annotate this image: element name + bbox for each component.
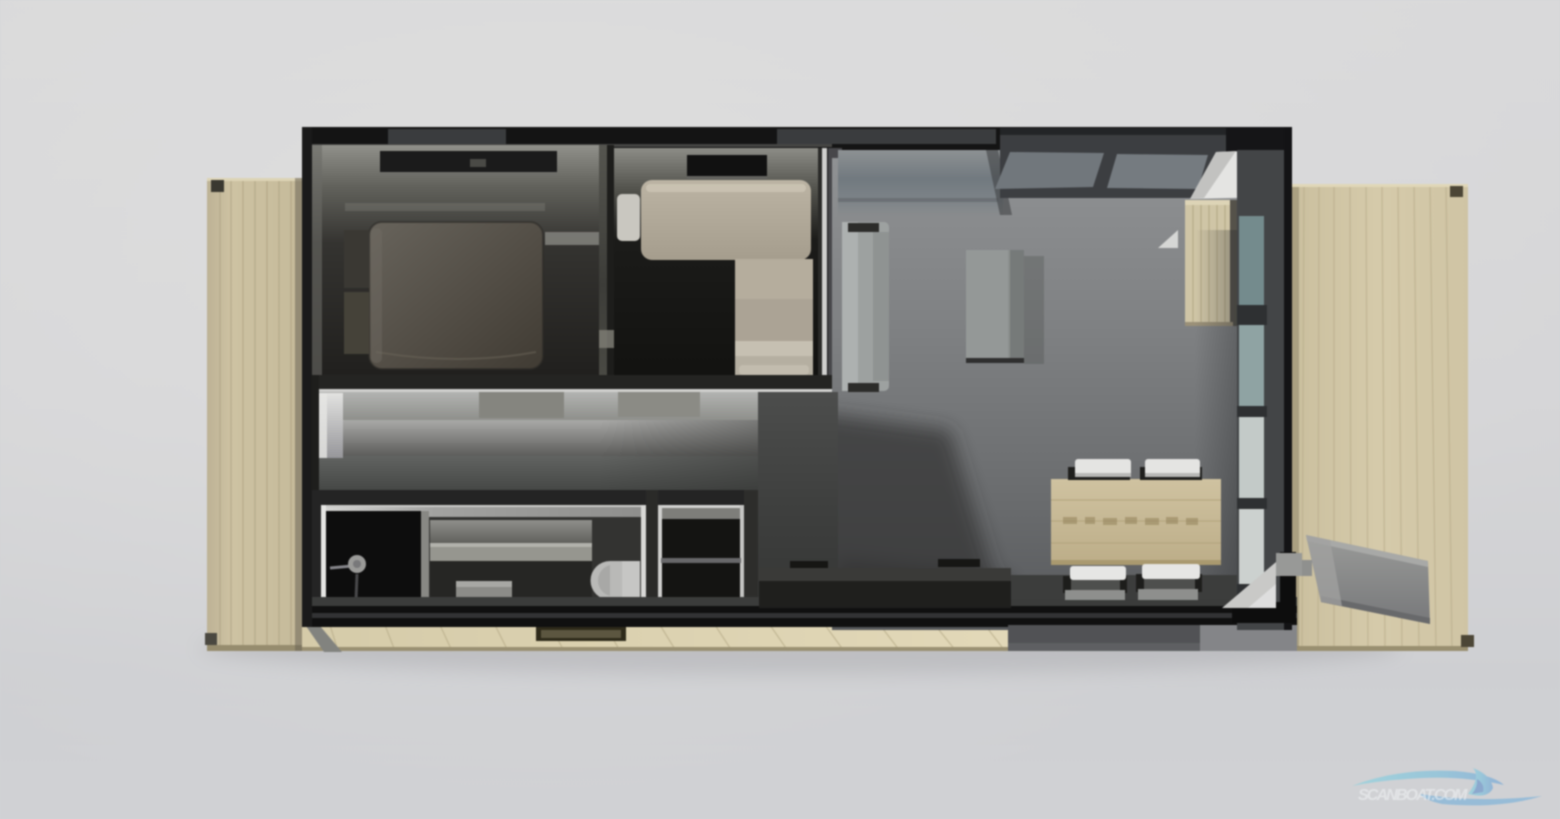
svg-text:SCANBOAT.COM: SCANBOAT.COM xyxy=(1358,787,1468,804)
